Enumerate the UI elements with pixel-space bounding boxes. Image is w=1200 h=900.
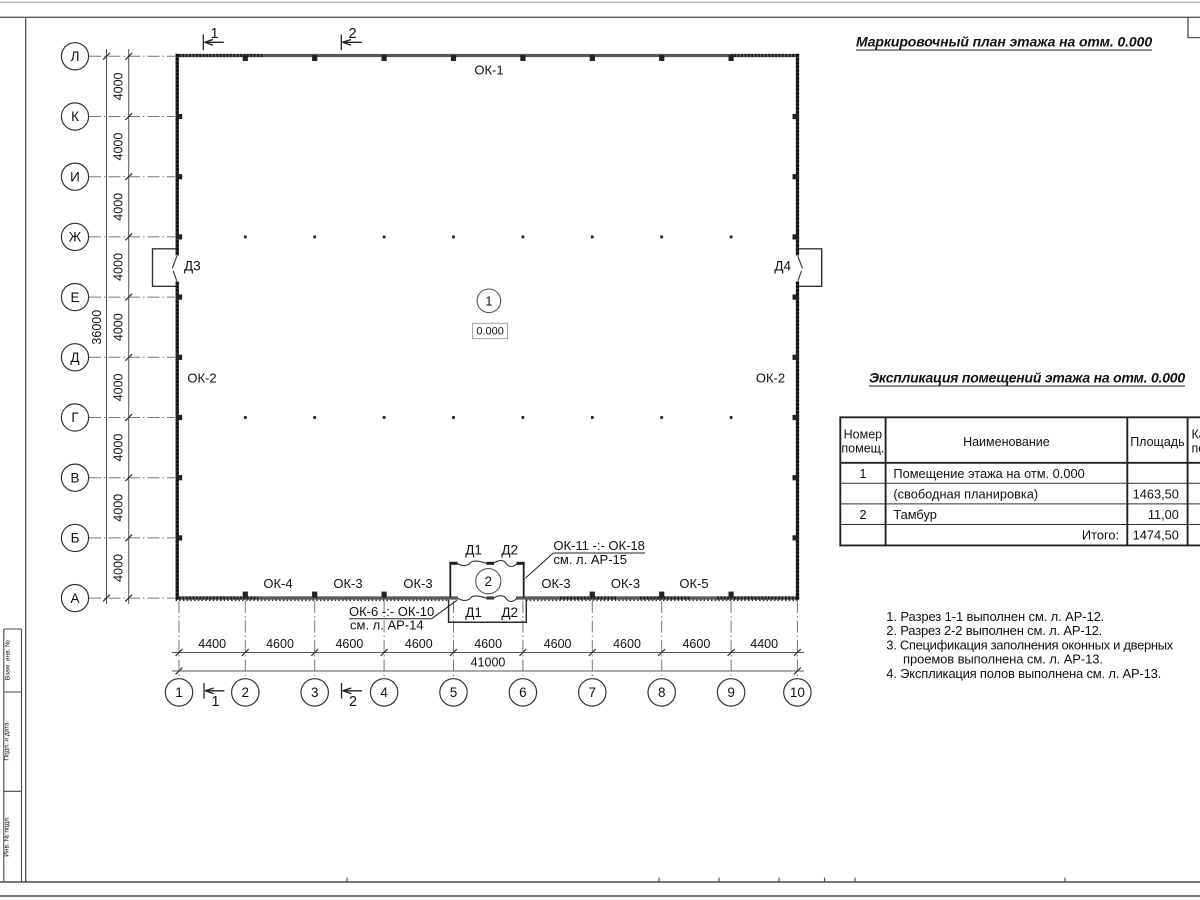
svg-text:4000: 4000 [112, 554, 126, 582]
svg-text:проемов выполнена см. л. АР-13: проемов выполнена см. л. АР-13. [903, 652, 1103, 667]
svg-text:К: К [71, 109, 79, 124]
svg-text:1. Разрез 1-1 выполнен см. л.: 1. Разрез 1-1 выполнен см. л. АР-12. [886, 609, 1104, 624]
svg-text:(свободная планировка): (свободная планировка) [893, 486, 1038, 501]
svg-text:Г: Г [71, 410, 79, 425]
svg-text:4. Экспликация полов выполнена: 4. Экспликация полов выполнена см. л. АР… [886, 666, 1161, 681]
svg-text:0.000: 0.000 [476, 326, 504, 338]
svg-text:1: 1 [859, 466, 866, 481]
svg-text:И: И [70, 169, 80, 184]
svg-text:Ж: Ж [69, 230, 82, 245]
svg-text:Тамбур: Тамбур [893, 507, 936, 522]
svg-text:Инв. № подл.: Инв. № подл. [4, 816, 11, 857]
svg-text:4000: 4000 [112, 193, 126, 221]
svg-text:ОК-3: ОК-3 [403, 576, 432, 591]
svg-text:см. л. АР-14: см. л. АР-14 [350, 618, 424, 633]
svg-text:Помещение этажа на отм. 0.000: Помещение этажа на отм. 0.000 [893, 466, 1084, 481]
svg-text:1474,50: 1474,50 [1133, 528, 1179, 543]
svg-text:11,00: 11,00 [1148, 507, 1179, 522]
svg-text:ОК-3: ОК-3 [611, 576, 640, 591]
svg-text:ОК-5: ОК-5 [679, 576, 708, 591]
svg-text:1: 1 [210, 26, 218, 42]
svg-text:41000: 41000 [471, 656, 506, 670]
svg-text:2: 2 [242, 685, 250, 700]
svg-text:2: 2 [859, 507, 866, 522]
svg-text:6: 6 [519, 685, 527, 700]
svg-text:ОК-2: ОК-2 [187, 371, 216, 386]
svg-text:ОК-3: ОК-3 [333, 576, 362, 591]
svg-text:Д1: Д1 [465, 605, 482, 620]
svg-text:4600: 4600 [474, 637, 502, 651]
svg-text:36000: 36000 [90, 310, 104, 345]
svg-text:Маркировочный план этажа на от: Маркировочный план этажа на отм. 0.000 [856, 34, 1152, 50]
svg-text:Л: Л [71, 49, 80, 64]
svg-text:4600: 4600 [266, 637, 294, 651]
svg-text:4000: 4000 [112, 494, 126, 522]
svg-text:Наименование: Наименование [963, 435, 1050, 449]
svg-text:7: 7 [589, 685, 597, 700]
svg-text:4000: 4000 [112, 253, 126, 281]
svg-text:4: 4 [380, 685, 388, 700]
svg-text:1: 1 [485, 293, 492, 308]
svg-text:1: 1 [211, 694, 219, 710]
svg-text:Итого:: Итого: [1082, 528, 1119, 543]
svg-text:4000: 4000 [112, 373, 126, 401]
svg-text:Д2: Д2 [501, 543, 518, 558]
svg-text:Подп. и дата: Подп. и дата [4, 722, 11, 761]
svg-text:4600: 4600 [405, 637, 433, 651]
svg-text:ОК-2: ОК-2 [756, 371, 785, 386]
svg-text:1463,50: 1463,50 [1133, 486, 1179, 501]
svg-text:10: 10 [790, 685, 805, 700]
svg-text:Д1: Д1 [465, 543, 482, 558]
svg-text:4000: 4000 [112, 72, 126, 100]
svg-text:4600: 4600 [682, 637, 710, 651]
svg-text:4600: 4600 [544, 637, 572, 651]
svg-text:ОК-4: ОК-4 [263, 576, 292, 591]
svg-text:ОК-3: ОК-3 [541, 576, 570, 591]
svg-text:2: 2 [349, 694, 357, 710]
svg-text:4000: 4000 [112, 133, 126, 161]
svg-text:9: 9 [727, 685, 735, 700]
svg-text:Д: Д [70, 350, 79, 365]
svg-text:4000: 4000 [112, 313, 126, 341]
svg-text:3. Спецификация заполнения око: 3. Спецификация заполнения оконных и две… [886, 637, 1174, 652]
svg-text:4600: 4600 [335, 637, 363, 651]
svg-text:4000: 4000 [112, 434, 126, 462]
svg-text:2. Разрез 2-2 выполнен см. л.: 2. Разрез 2-2 выполнен см. л. АР-12. [886, 623, 1102, 638]
svg-text:Экспликация помещений этажа на: Экспликация помещений этажа на отм. 0.00… [869, 370, 1185, 386]
svg-text:2: 2 [485, 574, 493, 589]
svg-text:Номер: Номер [844, 428, 883, 442]
svg-text:см. л. АР-15: см. л. АР-15 [553, 552, 627, 567]
svg-text:Взам. инв. №: Взам. инв. № [5, 640, 12, 680]
svg-text:по: по [1192, 442, 1200, 456]
svg-text:1: 1 [175, 685, 183, 700]
svg-text:А: А [70, 591, 79, 606]
svg-text:3: 3 [311, 685, 319, 700]
svg-text:5: 5 [450, 685, 458, 700]
svg-text:Д4: Д4 [774, 259, 791, 274]
svg-text:Ка: Ка [1192, 428, 1200, 442]
svg-text:Д3: Д3 [184, 259, 201, 274]
svg-text:2: 2 [348, 26, 356, 42]
svg-text:помещ.: помещ. [841, 442, 884, 456]
svg-text:4400: 4400 [750, 637, 778, 651]
svg-text:Площадь: Площадь [1130, 435, 1184, 449]
svg-text:В: В [70, 470, 79, 485]
svg-text:4400: 4400 [198, 637, 226, 651]
svg-text:Е: Е [70, 290, 79, 305]
svg-text:ОК-1: ОК-1 [474, 63, 503, 78]
svg-text:Д2: Д2 [501, 605, 518, 620]
svg-text:Б: Б [71, 531, 80, 546]
svg-text:8: 8 [658, 685, 666, 700]
svg-text:4600: 4600 [613, 637, 641, 651]
svg-text:ОК-11 -:- ОК-18: ОК-11 -:- ОК-18 [553, 538, 644, 553]
